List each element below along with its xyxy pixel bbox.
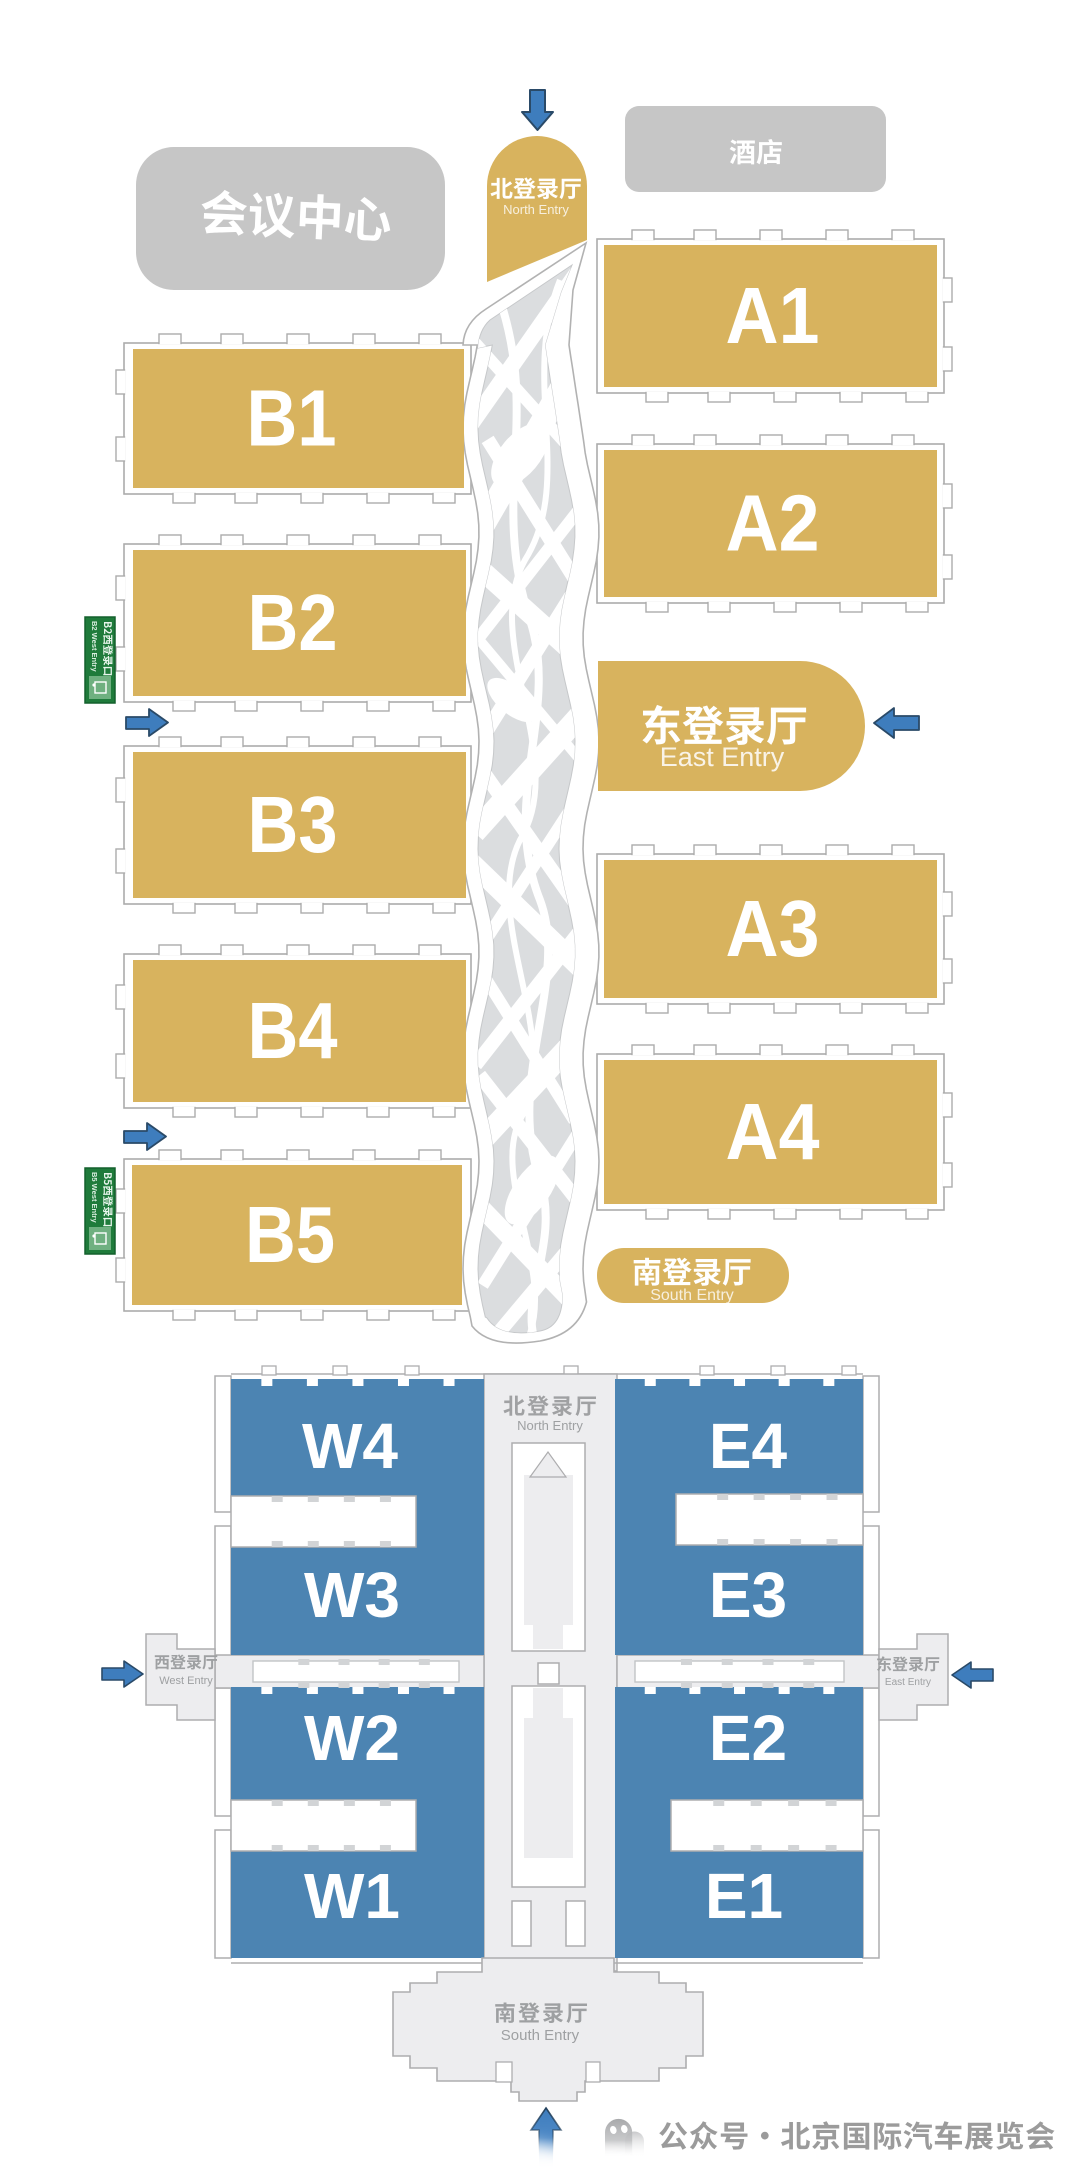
svg-text:B5 West Entry: B5 West Entry (90, 1172, 99, 1224)
svg-text:North Entry: North Entry (517, 1418, 583, 1433)
svg-text:E1: E1 (705, 1860, 783, 1932)
svg-text:A3: A3 (726, 884, 820, 973)
svg-text:W4: W4 (302, 1410, 398, 1482)
svg-text:W2: W2 (304, 1702, 400, 1774)
svg-text:West Entry: West Entry (159, 1675, 213, 1687)
svg-text:East Entry: East Entry (660, 742, 785, 772)
svg-text:A4: A4 (726, 1087, 820, 1176)
svg-text:B1: B1 (247, 374, 337, 463)
svg-text:E2: E2 (709, 1702, 787, 1774)
svg-text:E4: E4 (709, 1410, 788, 1482)
svg-text:B2 West Entry: B2 West Entry (90, 621, 99, 673)
svg-text:B4: B4 (248, 986, 338, 1075)
svg-text:North Entry: North Entry (503, 202, 569, 217)
svg-text:South Entry: South Entry (650, 1287, 734, 1304)
svg-text:W1: W1 (304, 1860, 400, 1932)
svg-text:South Entry: South Entry (501, 2027, 580, 2044)
svg-text:B2: B2 (248, 578, 338, 667)
svg-text:W3: W3 (304, 1559, 400, 1631)
svg-text:B3: B3 (248, 780, 338, 869)
svg-text:A1: A1 (726, 271, 820, 360)
svg-text:A2: A2 (726, 479, 820, 568)
svg-text:East Entry: East Entry (885, 1677, 931, 1688)
svg-text:B5: B5 (245, 1190, 335, 1279)
svg-text:E3: E3 (709, 1559, 787, 1631)
